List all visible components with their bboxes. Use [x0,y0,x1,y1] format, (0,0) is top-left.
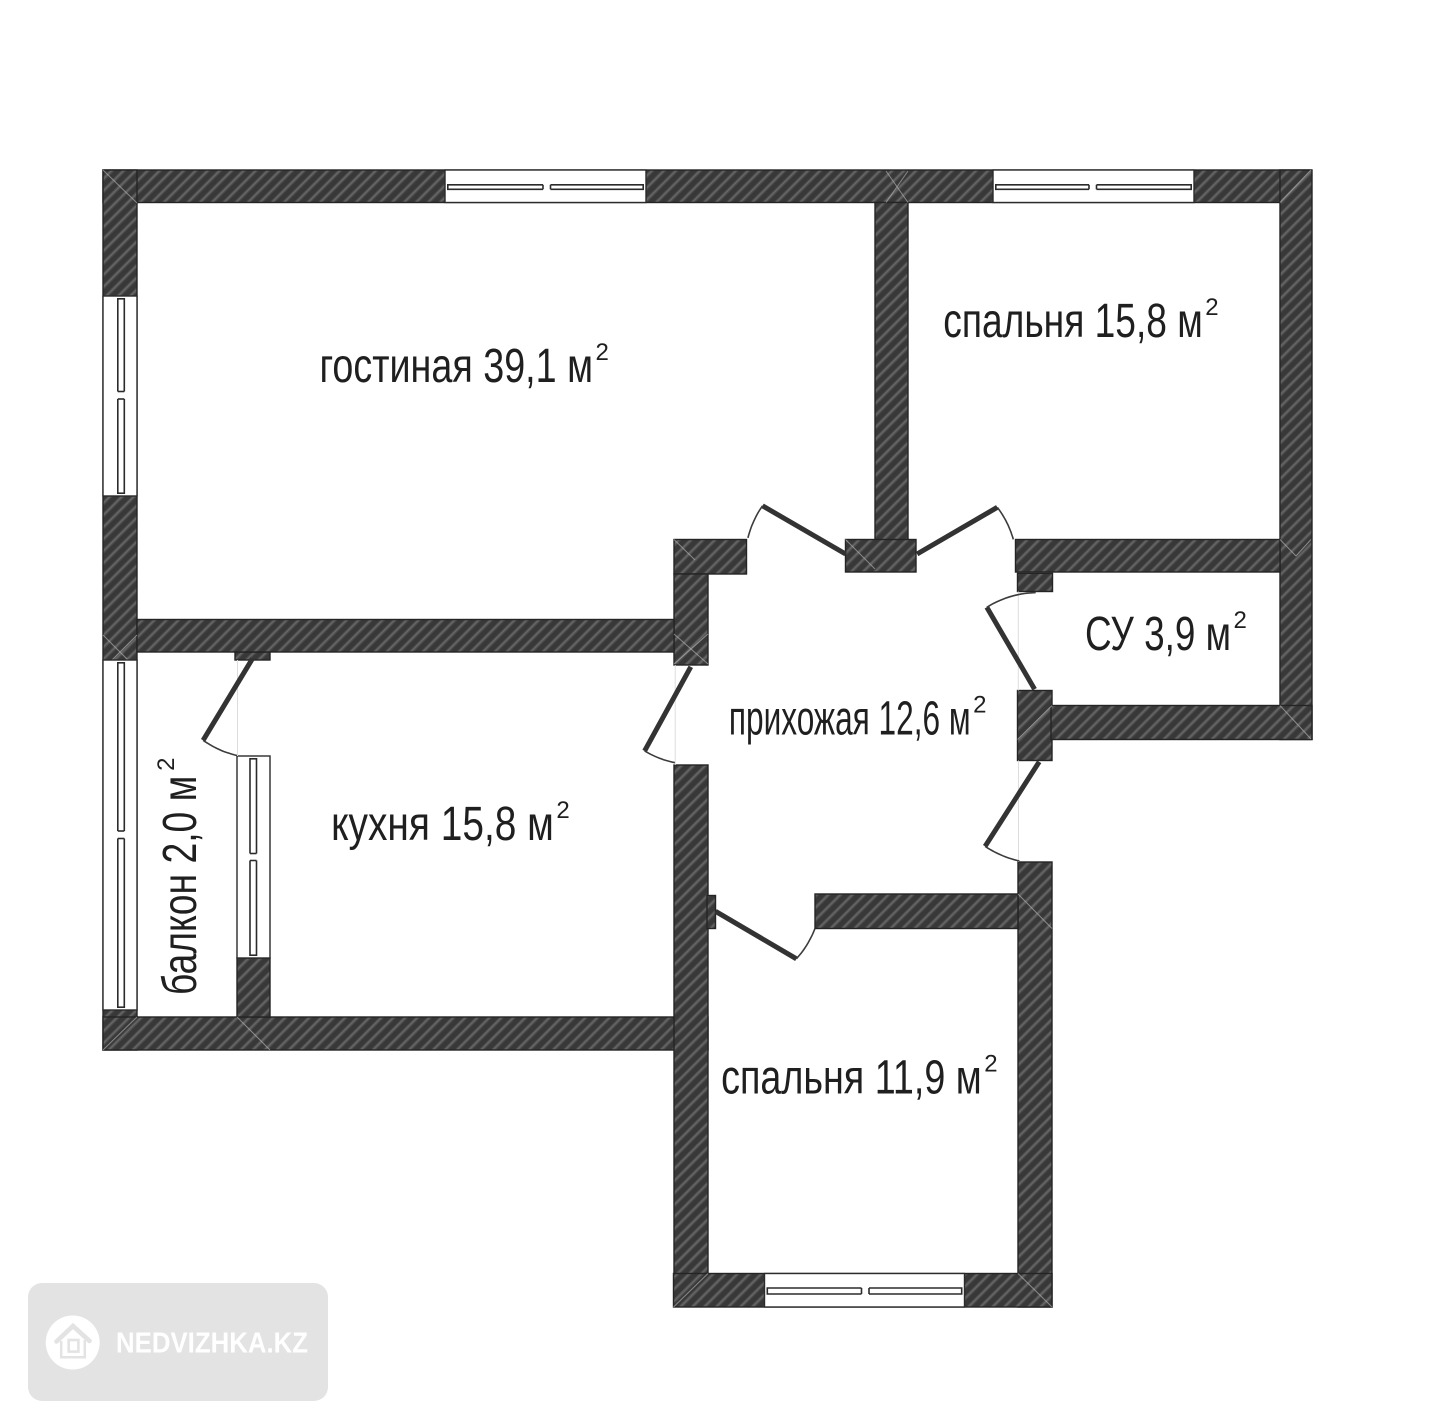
svg-text:2: 2 [556,797,569,824]
svg-text:2: 2 [1234,607,1247,634]
svg-text:2: 2 [984,1050,997,1077]
svg-text:гостиная 39,1 м: гостиная 39,1 м [320,340,594,393]
svg-text:спальня 15,8 м: спальня 15,8 м [943,295,1203,348]
svg-text:NEDVIZHKA.KZ: NEDVIZHKA.KZ [116,1328,308,1360]
svg-text:балкон 2,0 м: балкон 2,0 м [154,776,207,995]
svg-text:2: 2 [973,691,986,718]
svg-text:кухня 15,8 м: кухня 15,8 м [331,798,554,851]
svg-text:2: 2 [1205,294,1218,321]
svg-text:2: 2 [153,758,180,771]
svg-text:спальня 11,9 м: спальня 11,9 м [721,1051,982,1104]
svg-text:2: 2 [596,339,609,366]
svg-text:прихожая 12,6 м: прихожая 12,6 м [729,692,971,745]
svg-text:СУ 3,9 м: СУ 3,9 м [1085,608,1231,661]
